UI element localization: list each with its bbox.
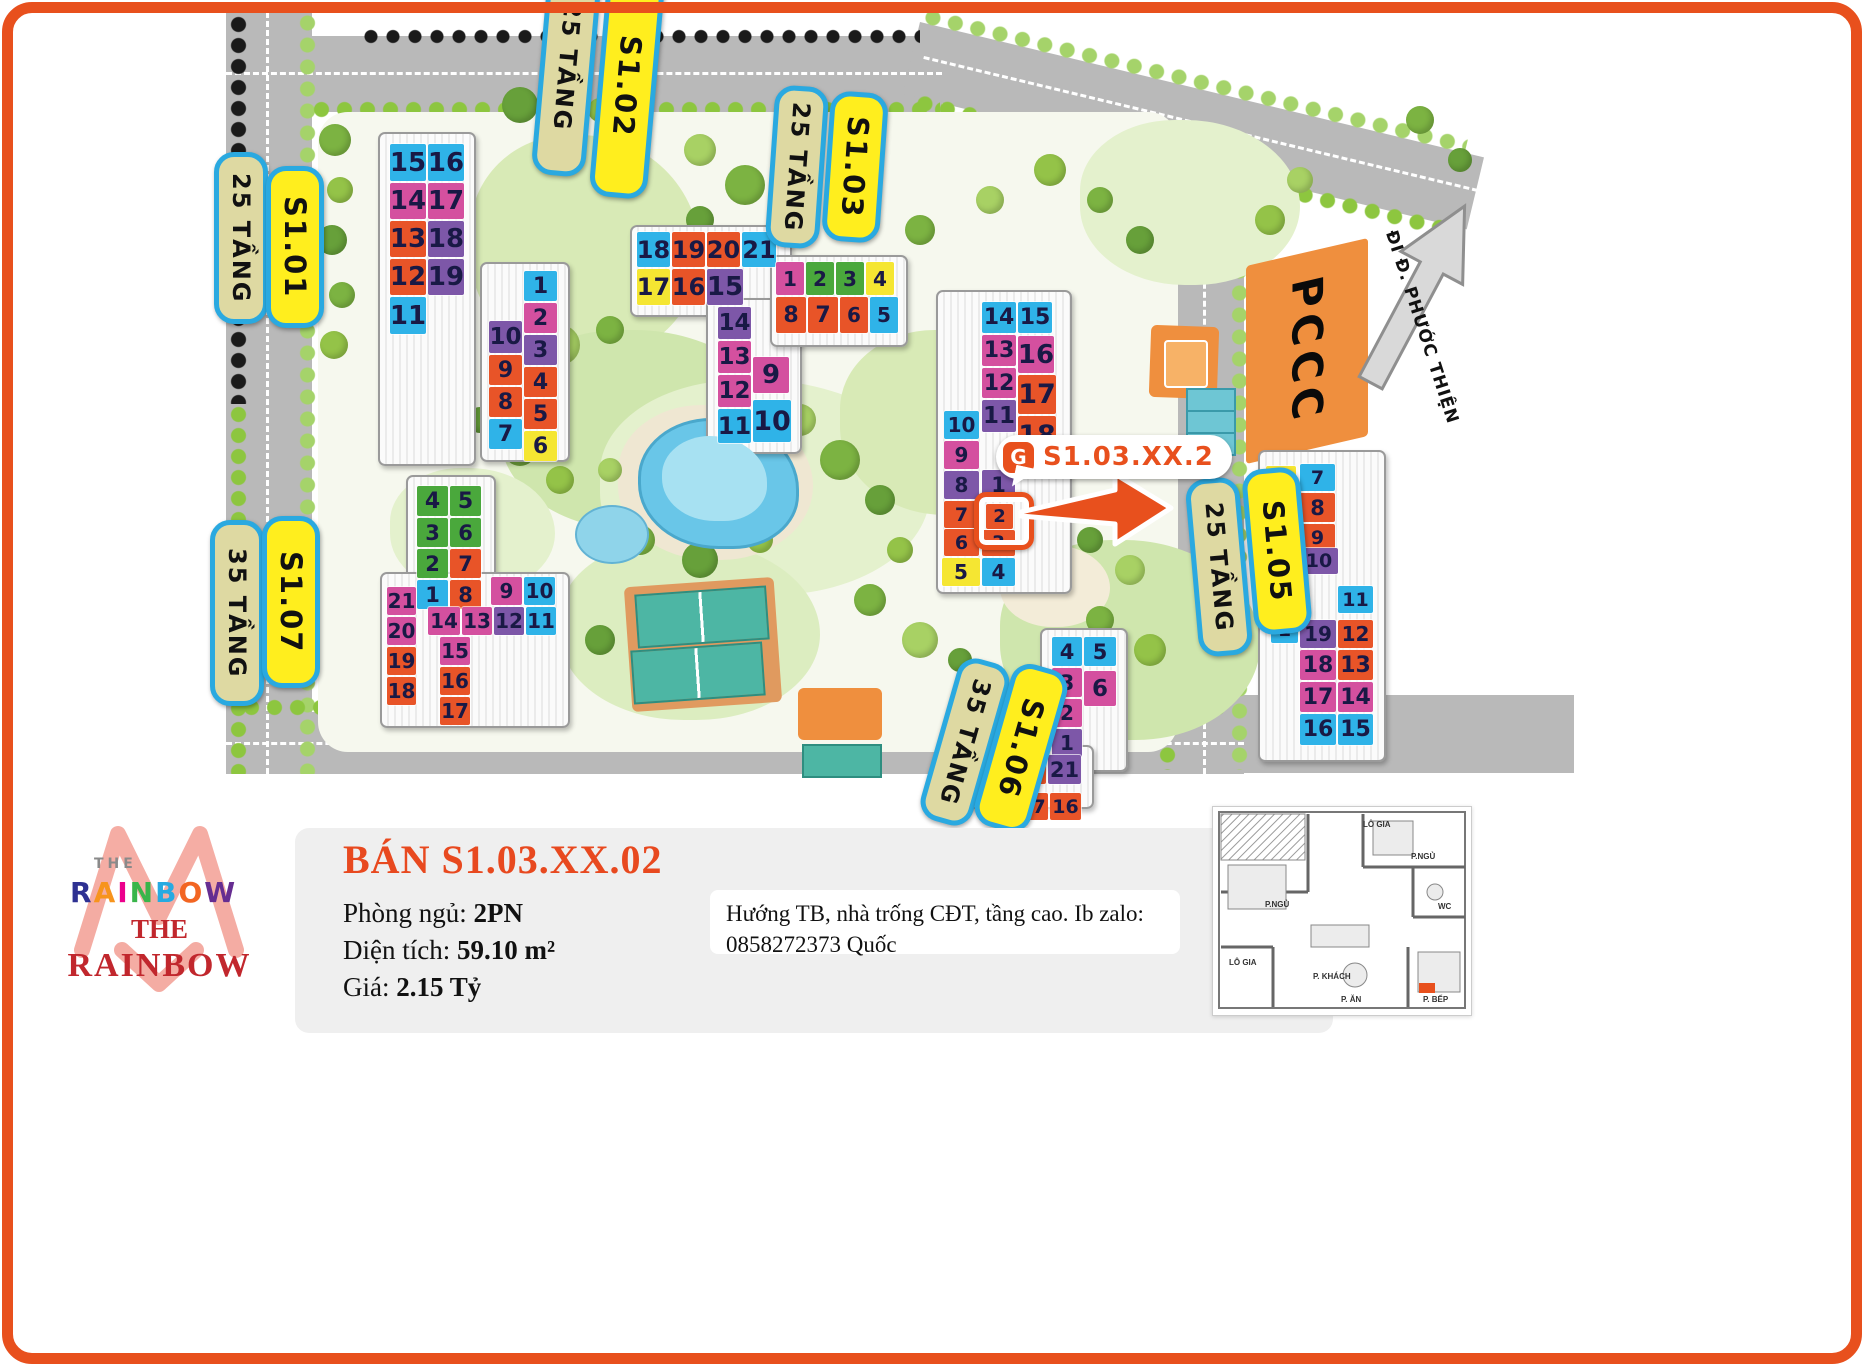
unit-tile-S1.07-12[interactable]: 12 xyxy=(494,607,524,635)
tree xyxy=(1287,167,1313,193)
map-label-s107: S1.07 xyxy=(262,516,320,688)
room-label: LÔ GIA xyxy=(1363,820,1391,829)
unit-tile-S1.02-7[interactable]: 7 xyxy=(808,297,838,333)
unit-tile-S1.07-10[interactable]: 10 xyxy=(524,577,555,605)
unit-tile-S1.03-15[interactable]: 15 xyxy=(1018,302,1052,333)
unit-tile-S1.07-16[interactable]: 16 xyxy=(440,667,470,695)
logo-rainbow-colored: RAINBOW xyxy=(70,876,237,909)
unit-tile-S1.02-16[interactable]: 16 xyxy=(672,269,705,305)
tree xyxy=(887,537,913,563)
field-label: Diện tích: xyxy=(343,935,457,965)
tree xyxy=(865,485,895,515)
unit-tile-S1.03-12[interactable]: 12 xyxy=(982,368,1016,398)
site-map: PCCC 15161417131812191112103948576181920… xyxy=(0,0,1864,1366)
unit-tile-S1.02-3[interactable]: 3 xyxy=(836,262,864,295)
unit-tile-S1.01-11[interactable]: 11 xyxy=(390,297,426,334)
unit-tile-S1.03-11[interactable]: 11 xyxy=(982,400,1016,432)
tree xyxy=(1087,187,1113,213)
unit-tile-S1.07-7[interactable]: 7 xyxy=(450,549,481,578)
unit-tile-S1.01-5[interactable]: 5 xyxy=(524,399,557,429)
tree xyxy=(320,331,348,359)
unit-tile-S1.07-14[interactable]: 14 xyxy=(428,607,460,635)
unit-tile-S1.03-16[interactable]: 16 xyxy=(1018,336,1054,373)
unit-tile-S1.04-7[interactable]: 7 xyxy=(1300,464,1335,491)
unit-tile-S1.07-3[interactable]: 3 xyxy=(417,518,448,547)
unit-tile-S1.03-14[interactable]: 14 xyxy=(982,302,1016,333)
unit-tile-S1.01-6[interactable]: 6 xyxy=(524,431,557,461)
tree xyxy=(905,215,935,245)
unit-tile-S1.07-20[interactable]: 20 xyxy=(387,617,416,645)
listing-title: BÁN S1.03.XX.02 xyxy=(343,836,662,883)
sofa xyxy=(1311,925,1369,947)
room-label: P. ĂN xyxy=(1341,995,1362,1004)
unit-tile-S1.03-17[interactable]: 17 xyxy=(1018,375,1056,414)
unit-tile-S1.02-14[interactable]: 14 xyxy=(718,307,751,339)
unit-tile-S1.06-5[interactable]: 5 xyxy=(1084,637,1116,666)
unit-tile-S1.04-12[interactable]: 12 xyxy=(1338,620,1373,648)
tree xyxy=(854,584,886,616)
stove xyxy=(1419,983,1435,993)
field-value: 2.15 Tỷ xyxy=(396,972,481,1002)
logo-the-serif: THE xyxy=(52,914,267,945)
tree xyxy=(1406,106,1434,134)
unit-tile-S1.01-15[interactable]: 15 xyxy=(390,144,426,181)
unit-tile-S1.01-16[interactable]: 16 xyxy=(428,144,464,181)
unit-tile-S1.06-4[interactable]: 4 xyxy=(1052,637,1082,666)
room-label: P. BẾP xyxy=(1423,994,1449,1004)
unit-tile-S1.01-8[interactable]: 8 xyxy=(489,387,522,417)
tree xyxy=(502,87,538,123)
unit-tile-S1.02-9[interactable]: 9 xyxy=(753,357,789,393)
tree xyxy=(327,177,353,203)
unit-tile-S1.01-9[interactable]: 9 xyxy=(489,355,522,385)
unit-tile-S1.02-6[interactable]: 6 xyxy=(840,297,868,333)
unit-tile-S1.04-16[interactable]: 16 xyxy=(1300,714,1336,745)
listing-area: Diện tích: 59.10 m² xyxy=(343,935,555,966)
unit-tile-S1.07-18[interactable]: 18 xyxy=(387,677,416,705)
room-label: LÔ GIA xyxy=(1229,958,1257,967)
logo-the-small: THE xyxy=(94,856,137,872)
unit-tile-S1.04-15[interactable]: 15 xyxy=(1338,714,1373,745)
unit-tile-S1.01-14[interactable]: 14 xyxy=(390,183,426,219)
unit-tile-S1.07-2[interactable]: 2 xyxy=(417,549,448,578)
tree xyxy=(1448,148,1472,172)
utility-pool xyxy=(1186,388,1236,412)
unit-tile-S1.03-8[interactable]: 8 xyxy=(944,471,979,499)
tree xyxy=(902,622,938,658)
unit-tile-S1.07-15[interactable]: 15 xyxy=(440,637,470,665)
field-label: Phòng ngủ: xyxy=(343,898,474,928)
map-label-s103-floors: 25 TẦNG xyxy=(764,84,829,249)
toilet xyxy=(1427,884,1443,900)
map-label-s101: S1.01 xyxy=(266,166,324,328)
pccc-label: PCCC xyxy=(1283,272,1332,431)
listing-panel: BÁN S1.03.XX.02 Phòng ngủ: 2PN Diện tích… xyxy=(295,828,1333,1033)
unit-tile-S1.02-13[interactable]: 13 xyxy=(718,341,751,373)
unit-tile-S1.02-19[interactable]: 19 xyxy=(672,232,705,267)
tree xyxy=(598,458,622,482)
unit-tile-S1.02-1[interactable]: 1 xyxy=(776,262,804,295)
tree xyxy=(585,625,615,655)
unit-tile-S1.02-20[interactable]: 20 xyxy=(707,232,740,267)
unit-callout-label: S1.03.XX.2 xyxy=(1043,442,1214,472)
unit-tile-S1.06-1[interactable]: 1 xyxy=(1052,729,1082,757)
unit-tile-S1.03-9[interactable]: 9 xyxy=(944,441,979,469)
unit-tile-S1.01-19[interactable]: 19 xyxy=(428,259,464,295)
unit-tile-S1.01-12[interactable]: 12 xyxy=(390,259,426,295)
unit-tile-S1.07-1[interactable]: 1 xyxy=(417,580,448,609)
unit-tile-S1.01-10[interactable]: 10 xyxy=(489,321,522,353)
tree xyxy=(976,186,1004,214)
tree xyxy=(1034,154,1066,186)
tree xyxy=(1134,634,1166,666)
unit-tile-S1.03-4[interactable]: 4 xyxy=(982,558,1015,586)
unit-tile-S1.01-13[interactable]: 13 xyxy=(390,221,426,257)
unit-tile-S1.02-17[interactable]: 17 xyxy=(637,269,670,305)
tennis-court xyxy=(634,585,769,648)
basketball-court-key xyxy=(1164,340,1208,388)
unit-tile-S1.01-1[interactable]: 1 xyxy=(524,271,557,301)
unit-tile-S1.01-2[interactable]: 2 xyxy=(524,303,557,333)
tennis-court xyxy=(630,641,765,704)
unit-tile-S1.07-11[interactable]: 11 xyxy=(526,607,556,635)
floorplan-thumbnail[interactable]: LÔ GIA P.NGỦ WC P.NGỦ LÔ GIA P. KHÁCH P.… xyxy=(1212,806,1472,1016)
unit-tile-S1.03-10[interactable]: 10 xyxy=(944,411,979,439)
unit-tile-S1.02-12[interactable]: 12 xyxy=(718,375,751,407)
unit-tile-S1.02-11[interactable]: 11 xyxy=(718,409,751,443)
unit-callout[interactable]: G S1.03.XX.2 xyxy=(996,435,1232,479)
unit-tile-S1.02-8[interactable]: 8 xyxy=(776,297,806,333)
tree xyxy=(1255,205,1285,235)
note-line: Hướng TB, nhà trống CĐT, tầng cao. Ib za… xyxy=(726,898,1164,929)
field-label: Giá: xyxy=(343,972,396,1002)
listing-price: Giá: 2.15 Tỷ xyxy=(343,972,481,1003)
unit-tile-S1.07-21[interactable]: 21 xyxy=(387,587,416,615)
unit-tile-S1.03-13[interactable]: 13 xyxy=(982,335,1016,366)
room-label: P. KHÁCH xyxy=(1313,972,1351,981)
unit-tile-S1.06-21[interactable]: 21 xyxy=(1048,755,1081,784)
tree xyxy=(546,466,574,494)
brand-g-icon: G xyxy=(1003,442,1034,473)
unit-tile-S1.02-18[interactable]: 18 xyxy=(637,232,670,267)
brand-logo: THE RAINBOW THE RAINBOW xyxy=(52,792,267,1007)
pond xyxy=(575,505,649,564)
unit-tile-S1.04-17[interactable]: 17 xyxy=(1300,682,1336,712)
unit-tile-S1.06-16[interactable]: 16 xyxy=(1050,793,1081,820)
tree xyxy=(1126,226,1154,254)
sport-structure xyxy=(802,744,882,778)
map-label-s107-floors: 35 TẦNG xyxy=(210,520,264,706)
unit-tile-S1.07-6[interactable]: 6 xyxy=(450,518,481,547)
sport-structure xyxy=(798,688,882,740)
map-label-s103: S1.03 xyxy=(821,90,889,244)
unit-tile-S1.04-18[interactable]: 18 xyxy=(1300,650,1336,680)
map-label-s101-floors: 25 TẦNG xyxy=(214,152,268,324)
unit-tile-S1.07-4[interactable]: 4 xyxy=(417,486,448,516)
tree xyxy=(684,134,716,166)
room-label: P.NGỦ xyxy=(1265,900,1290,909)
unit-tile-S1.07-9[interactable]: 9 xyxy=(491,577,522,605)
note-line: 0858272373 Quốc xyxy=(726,929,1164,960)
tree xyxy=(820,440,860,480)
field-value: 2PN xyxy=(474,898,524,928)
unit-tile-S1.01-18[interactable]: 18 xyxy=(428,221,464,257)
utility-pool xyxy=(1186,410,1236,434)
unit-tile-S1.04-8[interactable]: 8 xyxy=(1300,493,1335,522)
listing-note: Hướng TB, nhà trống CĐT, tầng cao. Ib za… xyxy=(710,890,1180,954)
unit-tile-S1.07-19[interactable]: 19 xyxy=(387,647,416,675)
unit-tile-S1.01-7[interactable]: 7 xyxy=(489,419,522,449)
unit-tile-S1.07-5[interactable]: 5 xyxy=(450,486,481,516)
unit-tile-S1.02-10[interactable]: 10 xyxy=(753,400,791,442)
unit-tile-S1.04-13[interactable]: 13 xyxy=(1338,650,1373,680)
tree xyxy=(596,316,624,344)
listing-bedrooms: Phòng ngủ: 2PN xyxy=(343,898,523,929)
pccc-zone: PCCC xyxy=(1246,238,1368,464)
unit-tile-S1.02-4[interactable]: 4 xyxy=(866,262,894,295)
unit-tile-S1.06-6[interactable]: 6 xyxy=(1084,671,1116,706)
room-label: WC xyxy=(1438,902,1452,911)
field-value: 59.10 m² xyxy=(457,935,555,965)
unit-tile-S1.02-5[interactable]: 5 xyxy=(870,297,898,333)
unit-tile-S1.07-8[interactable]: 8 xyxy=(450,580,481,609)
tree xyxy=(319,124,351,156)
logo-rainbow-serif: RAINBOW xyxy=(52,947,267,985)
tree xyxy=(329,282,355,308)
unit-tile-S1.04-11[interactable]: 11 xyxy=(1338,586,1373,613)
unit-tile-S1.02-2[interactable]: 2 xyxy=(806,262,834,295)
unit-tile-S1.03-5[interactable]: 5 xyxy=(942,558,980,586)
tree xyxy=(725,165,765,205)
unit-tile-S1.07-17[interactable]: 17 xyxy=(440,697,470,725)
unit-tile-S1.04-14[interactable]: 14 xyxy=(1338,682,1373,712)
unit-tile-S1.01-3[interactable]: 3 xyxy=(524,335,557,365)
unit-tile-S1.02-15[interactable]: 15 xyxy=(707,269,743,305)
highlight-arrow-icon xyxy=(1015,466,1179,554)
balcony-hatch xyxy=(1221,814,1305,860)
room-label: P.NGỦ xyxy=(1411,852,1436,861)
unit-tile-S1.07-13[interactable]: 13 xyxy=(462,607,492,635)
tree xyxy=(1115,555,1145,585)
unit-tile-S1.01-4[interactable]: 4 xyxy=(524,367,557,397)
poster: PCCC 15161417131812191112103948576181920… xyxy=(0,0,1864,1366)
unit-tile-S1.01-17[interactable]: 17 xyxy=(428,183,464,219)
